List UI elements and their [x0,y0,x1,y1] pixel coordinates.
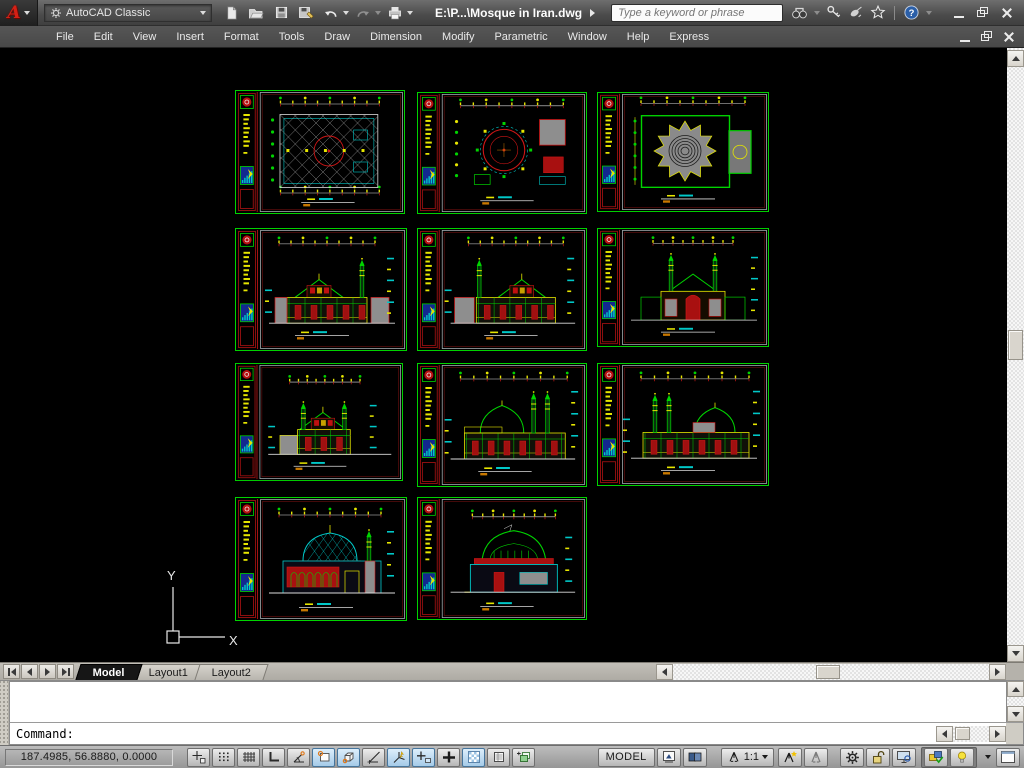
toggle-lineweight[interactable] [437,748,460,767]
drawing-sheet-elevation-front[interactable] [597,228,769,347]
titlebar-separator [894,6,895,20]
plot-caret-icon[interactable] [407,11,413,15]
menu-insert[interactable]: Insert [166,28,214,46]
menu-help[interactable]: Help [617,28,660,46]
toggle-grid-display[interactable] [237,748,260,767]
menu-parametric[interactable]: Parametric [484,28,557,46]
printer-icon [387,5,403,21]
layout-tabs: ModelLayout1Layout2 [78,662,260,680]
toggle-ortho-mode[interactable] [262,748,285,767]
status-bar: 187.4985, 56.8880, 0.0000 MODEL 1:1 [0,745,1024,768]
search-binoculars-icon[interactable] [791,5,808,20]
isolate-objects-icon [928,750,944,764]
drawing-sheet-elevation-small[interactable] [235,363,403,481]
tab-label: Layout1 [148,667,187,679]
toolbar-lock-button[interactable] [866,748,890,767]
workspace-switching-gear-icon [845,750,860,765]
toggle-snap-mode[interactable] [212,748,235,767]
object-snap-tracking-icon [366,750,382,764]
tab-model[interactable]: Model [75,664,142,680]
toggle-dynamic-ucs[interactable] [387,748,410,767]
search-input[interactable] [618,7,776,19]
command-vertical-scrollbar[interactable] [1007,681,1024,722]
help-icon[interactable]: ? [903,4,920,21]
isolate-objects-button[interactable] [924,748,948,767]
command-input-line[interactable]: Command: [10,727,936,741]
command-window: Command: <Object Snap Tracking off> Comm… [0,680,1024,745]
scroll-up-button[interactable] [1007,50,1024,67]
new-file-icon [224,5,239,21]
menu-items: FileEditViewInsertFormatToolsDrawDimensi… [46,28,719,46]
clean-screen-icon [1000,750,1016,764]
workspace-caret-icon [200,11,206,15]
lineweight-icon [441,750,457,764]
menu-edit[interactable]: Edit [84,28,123,46]
quick-view-layouts-button[interactable] [657,748,681,767]
ortho-mode-icon [266,750,282,764]
ucs-icon: Y X [145,553,240,653]
layout-tab-bar: ModelLayout1Layout2 [0,662,1024,680]
redo-group [352,3,381,23]
menu-file[interactable]: File [46,28,84,46]
command-scroll-right-button[interactable] [989,726,1006,742]
tab-navigation [0,663,76,680]
svg-text:X: X [229,633,238,648]
transparency-icon [466,750,482,764]
undo-button[interactable] [320,3,342,23]
horizontal-scroll-thumb[interactable] [816,665,840,679]
toggle-3d-object-snap[interactable] [337,748,360,767]
doc-close-button[interactable] [1002,31,1016,43]
next-tab-button[interactable] [39,664,56,679]
toggle-polar-tracking[interactable] [287,748,310,767]
status-right-cluster: MODEL 1:1 [598,747,1024,768]
drawing-sheet-section-dome-green[interactable] [417,497,587,620]
workspace-dropdown[interactable]: AutoCAD Classic [44,4,212,22]
redo-icon [355,5,371,20]
annotation-scale-control[interactable]: 1:1 [721,748,774,767]
save-floppy-icon [274,5,289,20]
doc-restore-button[interactable] [980,31,994,43]
model-space-canvas[interactable]: Y X [0,48,1024,662]
menu-view[interactable]: View [123,28,167,46]
drawing-sheet-elevation-minaret-right[interactable] [235,228,407,351]
dynamic-ucs-icon [391,750,407,764]
application-menu-button[interactable]: A [0,0,38,26]
lightbulb-icon [955,750,969,764]
menu-tools[interactable]: Tools [269,28,315,46]
autocad-window: A AutoCAD Classic [0,0,1024,768]
drafting-toggles [187,748,535,767]
doc-minimize-button[interactable] [958,31,972,43]
redo-history-caret-icon[interactable] [375,11,381,15]
vertical-scroll-thumb[interactable] [1008,330,1023,360]
menu-express[interactable]: Express [659,28,719,46]
unlock-icon [870,750,886,765]
document-title: E:\P...\Mosque in Iran.dwg [435,6,582,20]
hardware-acceleration-button[interactable] [892,748,916,767]
selection-cycling-icon [516,750,532,764]
toggle-transparency[interactable] [462,748,485,767]
toggle-quick-properties[interactable] [487,748,510,767]
quick-access-toolbar [220,3,413,23]
drawing-sheet-elevation-dome-right[interactable] [597,363,769,486]
workspace-label: AutoCAD Classic [66,7,196,19]
open-file-button[interactable] [245,3,267,23]
favorites-star-icon[interactable] [870,5,886,20]
menu-modify[interactable]: Modify [432,28,484,46]
grid-display-icon [241,750,257,764]
minimize-button[interactable] [952,7,966,19]
object-snap-icon [316,750,332,764]
first-tab-button[interactable] [3,664,20,679]
menu-draw[interactable]: Draw [314,28,360,46]
status-bar-menu-caret-icon[interactable] [985,755,991,759]
command-horizontal-scrollbar[interactable] [936,723,1023,744]
menu-bar: FileEditViewInsertFormatToolsDrawDimensi… [0,26,1024,48]
search-options-caret-icon[interactable] [814,11,820,15]
scroll-right-button[interactable] [989,664,1006,680]
command-hscroll-thumb[interactable] [955,727,970,740]
window-controls [952,7,1024,19]
menu-dimension[interactable]: Dimension [360,28,432,46]
clean-screen-button[interactable] [996,748,1020,767]
tab-layout2[interactable]: Layout2 [194,664,268,680]
menu-window[interactable]: Window [558,28,617,46]
horizontal-scrollbar[interactable] [656,664,1006,680]
infocenter-icons: ? [791,4,932,21]
drawing-sheet-section-dome-lattice[interactable] [235,497,407,621]
object-visibility-button[interactable] [950,748,974,767]
undo-history-caret-icon[interactable] [343,11,349,15]
quick-view-layouts-icon [661,750,677,764]
open-folder-icon [248,5,264,21]
app-menu-caret-icon [24,11,30,15]
previous-tab-button[interactable] [21,664,38,679]
drawing-sheet-floor-plan-hatched[interactable] [235,90,405,214]
command-window-grip[interactable] [0,681,9,745]
last-tab-button[interactable] [57,664,74,679]
restore-button[interactable] [976,7,990,19]
snap-mode-icon [216,750,232,764]
auto-annotation-scale-icon [808,750,824,764]
hardware-acceleration-icon [896,750,912,764]
document-window-controls [958,31,1024,43]
dynamic-input-icon [416,750,432,764]
save-button[interactable] [270,3,292,23]
workspace-gear-icon [50,7,62,19]
subscription-key-icon[interactable] [826,5,842,20]
annotation-scale-caret-icon [762,755,768,759]
plot-button[interactable] [384,3,406,23]
toggle-object-snap-tracking[interactable] [362,748,385,767]
scroll-left-button[interactable] [656,664,673,680]
svg-text:?: ? [909,8,915,19]
workspace-switching-button[interactable] [840,748,864,767]
command-scroll-up-button[interactable] [1007,681,1024,697]
vertical-scrollbar[interactable] [1007,48,1024,662]
communication-center-icon[interactable] [848,5,864,20]
tab-label: Model [93,667,125,679]
annotation-visibility-icon [782,750,798,764]
model-paper-toggle[interactable]: MODEL [598,748,655,767]
toggle-object-snap[interactable] [312,748,335,767]
save-as-button[interactable] [295,3,317,23]
plot-group [384,3,413,23]
scroll-down-button[interactable] [1007,645,1024,662]
auto-annotation-scale-button[interactable] [804,748,828,767]
menu-format[interactable]: Format [214,28,269,46]
quick-properties-icon [491,750,507,764]
undo-group [320,3,349,23]
command-scroll-down-button[interactable] [1007,706,1024,722]
drawing-sheet-elevation-wide-minarets[interactable] [417,363,587,487]
coordinate-display[interactable]: 187.4985, 56.8880, 0.0000 [5,749,173,766]
save-as-icon [298,5,314,21]
help-caret-icon[interactable] [926,11,932,15]
autocad-logo-icon: A [7,3,20,23]
drawing-sheet-floor-plan-dome[interactable] [417,92,587,214]
annotation-scale-icon [727,750,741,764]
new-file-button[interactable] [220,3,242,23]
quick-view-drawings-button[interactable] [683,748,707,767]
polar-tracking-icon [291,750,307,764]
svg-text:Y: Y [167,568,176,583]
drawing-sheet-roof-plan[interactable] [597,92,769,212]
undo-icon [323,5,339,20]
command-history: Command: <Object Snap Tracking off> Comm… [9,681,1007,722]
annotation-visibility-button[interactable] [778,748,802,767]
redo-button[interactable] [352,3,374,23]
3d-object-snap-icon [341,750,357,764]
toggle-dynamic-input[interactable] [412,748,435,767]
title-bar: A AutoCAD Classic [0,0,1024,26]
tab-label: Layout2 [212,667,251,679]
command-scroll-left-button[interactable] [936,726,953,742]
close-button[interactable] [1000,7,1014,19]
toggle-selection-cycling[interactable] [512,748,535,767]
help-search-field[interactable] [611,4,783,22]
isolate-objects-group [921,747,977,768]
scrollbar-corner [1006,663,1024,680]
infer-constraints-icon [191,750,207,764]
quick-view-drawings-icon [687,750,703,764]
title-flyout-icon[interactable] [590,9,595,17]
drawing-sheet-elevation-minaret-left[interactable] [417,228,587,351]
annotation-scale-value: 1:1 [744,751,759,763]
toggle-infer-constraints[interactable] [187,748,210,767]
